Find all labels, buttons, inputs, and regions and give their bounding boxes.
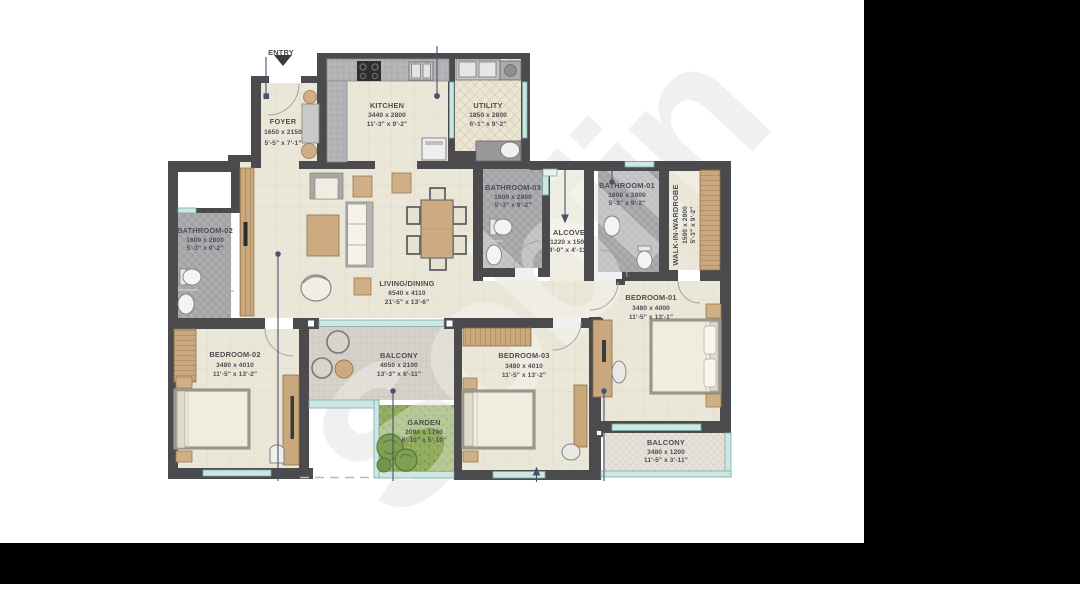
svg-text:6'-10" x 5'-10": 6'-10" x 5'-10" [402, 437, 447, 444]
svg-text:1850 x 2800: 1850 x 2800 [469, 112, 507, 119]
svg-text:5'-3" x 9'-2": 5'-3" x 9'-2" [186, 245, 223, 252]
svg-text:1220 x 1500: 1220 x 1500 [550, 239, 588, 246]
svg-text:FOYER: FOYER [270, 117, 297, 126]
svg-text:5'-3" x 9'-2": 5'-3" x 9'-2" [690, 206, 697, 243]
svg-text:5'-5" x 7'-1": 5'-5" x 7'-1" [264, 140, 301, 147]
svg-text:KITCHEN: KITCHEN [370, 101, 404, 110]
svg-text:6540 x 4110: 6540 x 4110 [388, 290, 426, 297]
svg-text:11'-5" x 13'-1": 11'-5" x 13'-1" [629, 314, 673, 321]
svg-text:1600 x 2800: 1600 x 2800 [186, 237, 224, 244]
svg-text:5'-3" x 9'-2": 5'-3" x 9'-2" [608, 200, 645, 207]
svg-text:3480 x 4010: 3480 x 4010 [505, 363, 543, 370]
svg-text:UTILITY: UTILITY [473, 101, 502, 110]
svg-text:BALCONY: BALCONY [647, 438, 685, 447]
svg-text:BEDROOM-03: BEDROOM-03 [498, 351, 549, 360]
svg-text:6'-1" x 9'-2": 6'-1" x 9'-2" [469, 121, 506, 128]
svg-text:BALCONY: BALCONY [380, 351, 418, 360]
svg-text:LIVING/DINING: LIVING/DINING [379, 279, 434, 288]
svg-text:13'-3" x 6'-11": 13'-3" x 6'-11" [377, 371, 421, 378]
svg-text:BATHROOM-03: BATHROOM-03 [485, 183, 541, 192]
svg-text:3480 x 4010: 3480 x 4010 [216, 362, 254, 369]
svg-text:21'-5" x 13'-6": 21'-5" x 13'-6" [385, 299, 430, 306]
svg-text:1590 x 2800: 1590 x 2800 [682, 206, 689, 244]
svg-text:BATHROOM-01: BATHROOM-01 [599, 181, 655, 190]
svg-text:4050 x 2100: 4050 x 2100 [380, 362, 418, 369]
svg-text:11'-5" x 3'-11": 11'-5" x 3'-11" [644, 457, 688, 464]
svg-text:BEDROOM-02: BEDROOM-02 [209, 350, 260, 359]
svg-text:5'-3" x 9'-2": 5'-3" x 9'-2" [494, 202, 531, 209]
svg-text:ENTRY: ENTRY [268, 48, 294, 57]
svg-text:11'-5" x 13'-2": 11'-5" x 13'-2" [213, 371, 257, 378]
svg-text:3440 x 2800: 3440 x 2800 [368, 112, 406, 119]
svg-text:11'-5" x 13'-2": 11'-5" x 13'-2" [502, 372, 546, 379]
svg-text:GARDEN: GARDEN [407, 418, 440, 427]
svg-text:11'-3" x 9'-2": 11'-3" x 9'-2" [367, 121, 407, 128]
svg-text:3480 x 1200: 3480 x 1200 [647, 449, 685, 456]
svg-text:BEDROOM-01: BEDROOM-01 [625, 293, 676, 302]
svg-text:4'-0" x 4'-11": 4'-0" x 4'-11" [549, 247, 589, 254]
svg-text:ALCOVE: ALCOVE [553, 228, 585, 237]
svg-text:2090 x 1790: 2090 x 1790 [405, 429, 443, 436]
svg-text:1650 x 2150: 1650 x 2150 [264, 129, 302, 136]
svg-text:1600 x 2800: 1600 x 2800 [494, 194, 532, 201]
svg-text:WALK-IN-WARDROBE: WALK-IN-WARDROBE [671, 184, 680, 265]
svg-text:3480 x 4000: 3480 x 4000 [632, 305, 670, 312]
svg-text:BATHROOM-02: BATHROOM-02 [177, 226, 233, 235]
svg-text:1600 x 2800: 1600 x 2800 [608, 192, 646, 199]
